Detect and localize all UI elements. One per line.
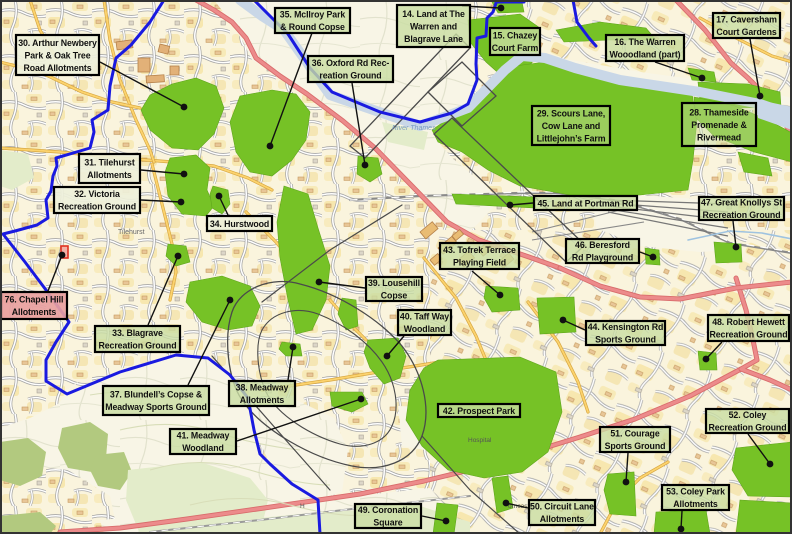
- svg-text:76. Chapel Hill: 76. Chapel Hill: [5, 295, 64, 305]
- svg-text:38. Meadway: 38. Meadway: [236, 383, 289, 393]
- svg-text:Court Farm: Court Farm: [492, 43, 539, 53]
- svg-text:Sports Ground: Sports Ground: [605, 441, 666, 451]
- svg-text:35. McIlroy Park: 35. McIlroy Park: [280, 10, 346, 20]
- svg-text:29. Scours Lane,: 29. Scours Lane,: [537, 109, 605, 119]
- svg-text:47. Great Knollys St: 47. Great Knollys St: [701, 198, 782, 208]
- svg-text:Promenade &: Promenade &: [691, 120, 747, 130]
- svg-text:River Thames: River Thames: [392, 125, 436, 132]
- svg-text:52. Coley: 52. Coley: [729, 410, 767, 420]
- svg-text:45. Land at Portman Rd: 45. Land at Portman Rd: [537, 198, 633, 208]
- svg-text:Blagrave Lane: Blagrave Lane: [404, 34, 463, 44]
- svg-text:Allotments: Allotments: [240, 395, 285, 405]
- svg-text:Copse: Copse: [381, 291, 408, 301]
- svg-text:Recreation Ground: Recreation Ground: [58, 202, 136, 212]
- svg-text:Road Allotments: Road Allotments: [23, 63, 91, 73]
- svg-text:46. Beresford: 46. Beresford: [575, 240, 630, 250]
- svg-text:37. Blundell’s Copse &: 37. Blundell’s Copse &: [110, 390, 203, 400]
- svg-text:Hospital: Hospital: [468, 437, 492, 444]
- svg-text:33. Blagrave: 33. Blagrave: [112, 328, 163, 338]
- svg-text:14. Land at The: 14. Land at The: [402, 9, 465, 19]
- svg-text:Allotments: Allotments: [673, 499, 718, 509]
- svg-text:53. Coley Park: 53. Coley Park: [666, 487, 725, 497]
- svg-text:31. Tilehurst: 31. Tilehurst: [84, 158, 135, 168]
- svg-text:Warren and: Warren and: [410, 21, 457, 31]
- svg-text:Rd Playground: Rd Playground: [572, 253, 633, 263]
- svg-text:Square: Square: [373, 518, 402, 528]
- svg-text:Park & Oak Tree: Park & Oak Tree: [25, 50, 91, 60]
- svg-text:Woodland: Woodland: [182, 443, 224, 453]
- svg-text:Wooodland (part): Wooodland (part): [609, 50, 680, 60]
- svg-text:42. Prospect Park: 42. Prospect Park: [443, 406, 515, 416]
- svg-text:Recreation Ground: Recreation Ground: [709, 423, 787, 433]
- svg-text:43. Tofrek Terrace: 43. Tofrek Terrace: [443, 245, 516, 255]
- svg-text:Cow Lane and: Cow Lane and: [542, 121, 600, 131]
- svg-text:15. Chazey: 15. Chazey: [493, 31, 538, 41]
- svg-text:Recreation Ground: Recreation Ground: [710, 330, 788, 340]
- svg-text:Playing Field: Playing Field: [453, 258, 506, 268]
- svg-text:34. Hurstwood: 34. Hurstwood: [210, 219, 269, 229]
- svg-text:39. Lousehill: 39. Lousehill: [368, 278, 420, 288]
- svg-text:36. Oxford Rd Rec-: 36. Oxford Rd Rec-: [312, 58, 390, 68]
- svg-text:Littlejohn’s Farm: Littlejohn’s Farm: [537, 133, 606, 143]
- svg-text:50. Circuit Lane: 50. Circuit Lane: [530, 502, 594, 512]
- svg-text:40. Taff Way: 40. Taff Way: [400, 312, 449, 322]
- svg-text:Allotments: Allotments: [87, 170, 132, 180]
- svg-text:30. Arthur Newbery: 30. Arthur Newbery: [18, 38, 97, 48]
- svg-text:44. Kensington Rd: 44. Kensington Rd: [588, 322, 664, 332]
- svg-text:16. The Warren: 16. The Warren: [614, 37, 675, 47]
- svg-text:48. Robert Hewett: 48. Robert Hewett: [712, 317, 785, 327]
- svg-text:17. Caversham: 17. Caversham: [716, 15, 777, 25]
- svg-text:49. Coronation: 49. Coronation: [358, 505, 418, 515]
- svg-text:Recreation Ground: Recreation Ground: [99, 341, 177, 351]
- svg-text:32. Victoria: 32. Victoria: [74, 189, 120, 199]
- svg-text:51. Courage: 51. Courage: [610, 429, 659, 439]
- svg-text:Sports Ground: Sports Ground: [595, 335, 656, 345]
- svg-text:Woodland: Woodland: [404, 324, 446, 334]
- svg-text:Allotments: Allotments: [540, 514, 585, 524]
- svg-text:Rivermead: Rivermead: [697, 132, 741, 142]
- svg-text:Allotments: Allotments: [12, 307, 57, 317]
- svg-text:28. Thameside: 28. Thameside: [689, 108, 749, 118]
- svg-text:Tilehurst: Tilehurst: [118, 229, 145, 236]
- svg-text:reation Ground: reation Ground: [319, 71, 381, 81]
- svg-text:Meadway Sports Ground: Meadway Sports Ground: [105, 402, 207, 412]
- svg-text:Recreation Ground: Recreation Ground: [703, 210, 781, 220]
- svg-text:Court Gardens: Court Gardens: [716, 27, 776, 37]
- svg-text:& Round Copse: & Round Copse: [280, 22, 345, 32]
- svg-text:41. Meadway: 41. Meadway: [177, 431, 230, 441]
